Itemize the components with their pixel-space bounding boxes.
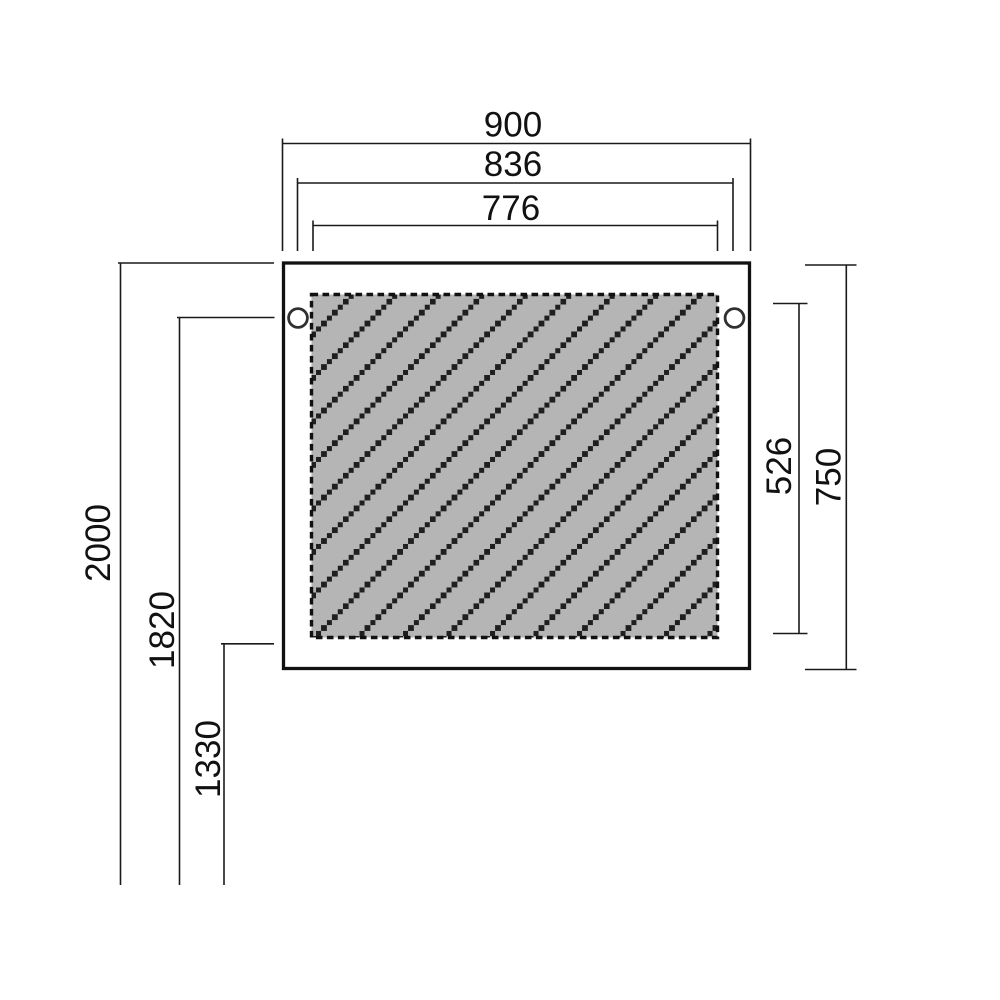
svg-text:1330: 1330 [189, 720, 228, 798]
svg-text:526: 526 [760, 437, 799, 495]
svg-text:776: 776 [482, 189, 540, 228]
svg-text:750: 750 [810, 448, 849, 506]
svg-text:2000: 2000 [79, 504, 118, 582]
svg-text:1820: 1820 [143, 591, 182, 669]
svg-text:900: 900 [484, 106, 542, 145]
svg-text:836: 836 [484, 145, 542, 184]
